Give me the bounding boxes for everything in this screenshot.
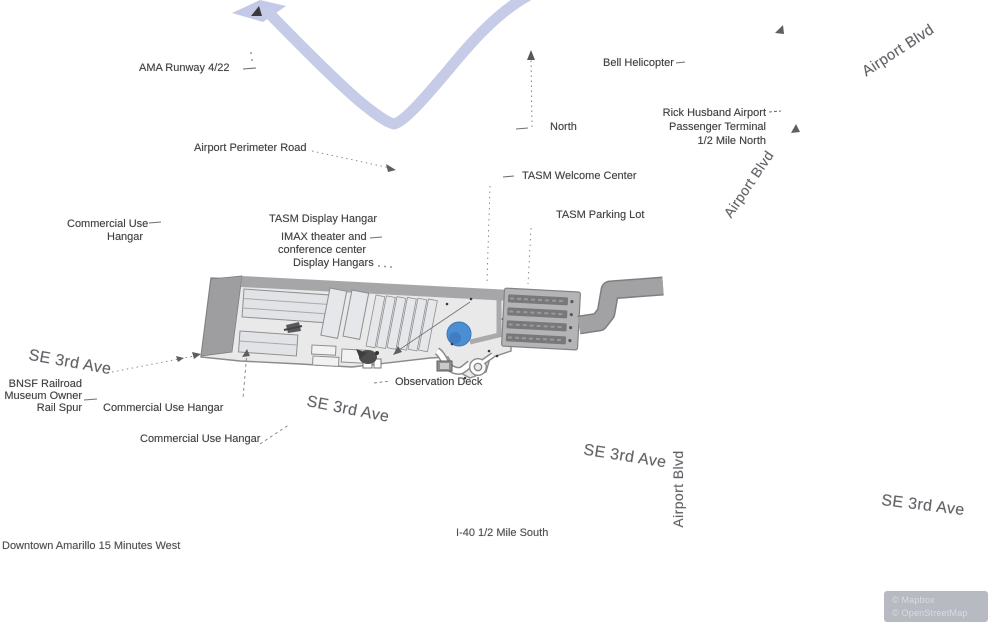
street-airport-blvd-south: Airport Blvd xyxy=(670,444,686,534)
label-tasm-welcome-center: TASM Welcome Center xyxy=(522,170,637,183)
label-bell-helicopter: Bell Helicopter xyxy=(603,57,674,70)
north-arrow xyxy=(527,50,535,127)
map-attribution-badge[interactable]: © Mapbox © OpenStreetMap xyxy=(884,591,988,622)
label-display-hangars: Display Hangars xyxy=(293,257,374,270)
label-tasm-display-hangar: TASM Display Hangar xyxy=(269,213,377,226)
label-conference-center: conference center xyxy=(278,244,366,257)
label-commercial-use-hangar-s: Commercial Use Hangar xyxy=(140,433,260,446)
scanned-site-map-page: { "labels": { "ama_runway": "AMA Runway … xyxy=(0,0,990,627)
observation-deck-building xyxy=(437,361,452,371)
runway-band xyxy=(232,0,550,124)
attribution-mapbox[interactable]: © Mapbox xyxy=(892,594,988,607)
label-bnsf-rail-spur: BNSF Railroad Museum Owner Rail Spur xyxy=(4,378,82,414)
label-tasm-parking-lot: TASM Parking Lot xyxy=(556,209,644,222)
label-north: North xyxy=(550,121,577,134)
access-road xyxy=(579,286,663,325)
label-commercial-use-hangar-nw: Commercial Use Hangar xyxy=(67,218,148,244)
label-downtown-amarillo: Downtown Amarillo 15 Minutes West xyxy=(2,540,180,553)
label-commercial-use-hangar-sw: Commercial Use Hangar xyxy=(103,402,223,415)
label-rick-husband-terminal: Rick Husband Airport Passenger Terminal … xyxy=(663,106,766,148)
attribution-openstreetmap[interactable]: © OpenStreetMap xyxy=(892,607,988,620)
label-i40-south: I-40 1/2 Mile South xyxy=(456,527,548,540)
label-observation-deck: Observation Deck xyxy=(395,376,482,389)
parking-lot xyxy=(502,288,581,350)
label-imax-theater: IMAX theater and xyxy=(281,231,367,244)
label-ama-runway: AMA Runway 4/22 xyxy=(139,62,230,75)
label-airport-perimeter-road: Airport Perimeter Road xyxy=(194,142,307,155)
pond xyxy=(447,322,471,346)
